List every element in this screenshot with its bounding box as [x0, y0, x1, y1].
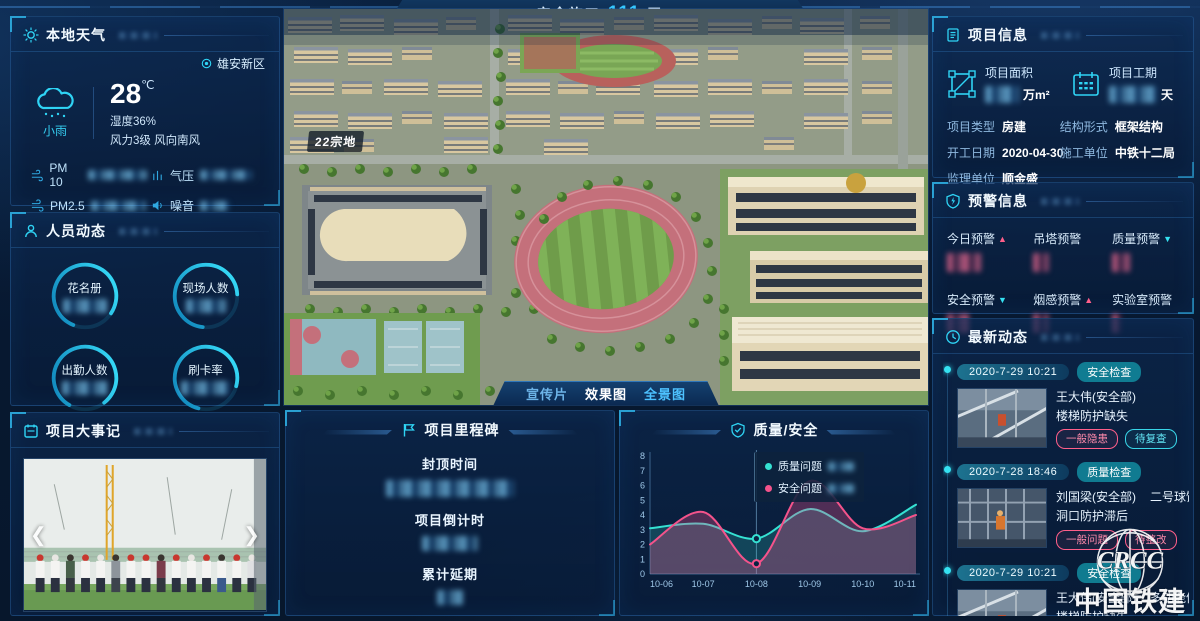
- header-line: [164, 231, 269, 232]
- ring-label: 花名册: [67, 280, 102, 296]
- trend-down-icon: ▼: [1163, 234, 1172, 244]
- stat-unit: 天: [1161, 88, 1173, 102]
- quality-safety-chart[interactable]: 01234567810-0610-0710-0810-0910-1010-11 …: [626, 444, 922, 594]
- redacted-value: [186, 299, 226, 313]
- news-type-badge: 安全检查: [1077, 362, 1141, 382]
- svg-text:1: 1: [640, 554, 645, 564]
- gauge-icon: [151, 169, 164, 182]
- news-photo: [957, 488, 1047, 548]
- svg-text:10-08: 10-08: [745, 579, 768, 589]
- milestone-panel-header: 项目里程碑: [286, 411, 614, 440]
- metric-label: PM 10: [49, 161, 82, 189]
- weather-condition: 小雨: [33, 88, 77, 139]
- calendar-icon: [1071, 69, 1101, 99]
- speaker-icon: [151, 199, 164, 212]
- events-photo-carousel[interactable]: ❮ ❯: [23, 458, 267, 612]
- news-type-badge: 质量检查: [1077, 462, 1141, 482]
- svg-text:10-11: 10-11: [894, 579, 916, 589]
- weather-current: 小雨 28℃ 湿度36% 风力3级 风向南风: [33, 78, 269, 148]
- svg-text:10-09: 10-09: [798, 579, 821, 589]
- milestone-label: 累计延期: [422, 564, 478, 583]
- weather-readings: 28℃ 湿度36% 风力3级 风向南风: [110, 78, 200, 148]
- events-panel-title: 项目大事记: [46, 421, 121, 441]
- wind-label: 风力3级 风向南风: [110, 132, 200, 148]
- project-stats: 项目面积 万m² 项目工期 天: [933, 52, 1193, 108]
- header-decor: [1041, 334, 1079, 341]
- events-panel: 项目大事记: [10, 412, 280, 616]
- project-info-header: 项目信息: [933, 17, 1193, 52]
- milestone-label: 封顶时间: [422, 454, 478, 473]
- news-header: 最新动态: [933, 319, 1193, 354]
- news-photo: [957, 589, 1047, 616]
- warning-label: 实验室预警: [1112, 291, 1172, 308]
- field-value: 房建: [1002, 118, 1026, 135]
- milestone-items: 封顶时间 项目倒计时 累计延期: [286, 440, 614, 605]
- warning-label: 吊塔预警: [1033, 230, 1081, 247]
- personnel-panel: 人员动态 花名册 现场人数 出勤人数 刷卡率: [10, 212, 280, 406]
- redacted-value: [181, 381, 231, 395]
- news-tag: 一般隐患: [1056, 429, 1118, 449]
- redacted-value: [1033, 253, 1049, 272]
- field-label: 施工单位: [1060, 144, 1108, 161]
- redacted-value: [91, 201, 146, 211]
- redacted-value: [1112, 253, 1130, 272]
- svg-text:4: 4: [640, 510, 645, 520]
- header-decor: [1041, 198, 1079, 205]
- timeline-dot: [944, 567, 951, 574]
- warnings-title: 预警信息: [968, 191, 1028, 211]
- redacted-value: [200, 201, 230, 211]
- smart-site-dashboard: 安全施工 111 天 本地天气 雄安新区 小雨 28℃: [0, 0, 1200, 621]
- aerial-render: [284, 9, 928, 405]
- timeline-dot: [944, 466, 951, 473]
- header-decor: [134, 428, 172, 435]
- milestone-panel: 项目里程碑 封顶时间 项目倒计时 累计延期: [285, 410, 615, 616]
- weather-panel-title: 本地天气: [46, 25, 106, 45]
- divider: [93, 87, 94, 139]
- legend-dot: [765, 463, 772, 470]
- group-photo: [24, 459, 266, 610]
- personnel-rings: 花名册 现场人数 出勤人数 刷卡率: [11, 248, 279, 414]
- ring-roster: 花名册: [49, 260, 121, 332]
- svg-text:10-10: 10-10: [851, 579, 874, 589]
- dust-icon: [31, 199, 44, 212]
- redacted-value: [88, 170, 147, 180]
- temperature-unit: ℃: [141, 78, 154, 92]
- humidity-label: 湿度36%: [110, 113, 200, 129]
- chart-tooltip: 质量问题 安全问题: [754, 452, 864, 502]
- legend-label: 安全问题: [778, 480, 822, 496]
- personnel-panel-header: 人员动态: [11, 213, 279, 248]
- project-fields: 项目类型房建 结构形式框架结构 开工日期2020-04-30 施工单位中铁十二局…: [933, 108, 1193, 187]
- crcc-acronym: CRCC: [1097, 548, 1164, 575]
- ring-onsite: 现场人数: [170, 260, 242, 332]
- field-label: 结构形式: [1060, 118, 1108, 135]
- document-icon: [945, 27, 961, 43]
- field-value: 中铁十二局: [1115, 144, 1175, 161]
- legend-label: 质量问题: [778, 458, 822, 474]
- location-pin-icon: [201, 58, 212, 69]
- redacted-value: [63, 299, 107, 313]
- header-line: [164, 35, 269, 36]
- carousel-prev-button[interactable]: ❮: [30, 523, 47, 548]
- redacted-value: [437, 590, 463, 605]
- svg-text:5: 5: [640, 495, 645, 505]
- warning-label: 质量预警: [1112, 230, 1160, 247]
- field-value: 框架结构: [1115, 118, 1163, 135]
- redacted-value: [947, 253, 981, 272]
- news-tag: 待复查: [1125, 429, 1177, 449]
- svg-text:2: 2: [640, 540, 645, 550]
- carousel-next-button[interactable]: ❯: [243, 523, 260, 548]
- svg-text:10-06: 10-06: [650, 579, 673, 589]
- rain-cloud-icon: [33, 88, 77, 120]
- warning-crane: 吊塔预警: [1033, 230, 1106, 277]
- person-icon: [23, 223, 39, 239]
- trend-up-icon: ▲: [1084, 295, 1093, 305]
- ring-swipe-rate: 刷卡率: [170, 342, 242, 414]
- timeline-dot: [944, 366, 951, 373]
- redacted-value: [828, 484, 854, 493]
- header-line: [1086, 337, 1183, 338]
- warnings-header: 预警信息: [933, 183, 1193, 218]
- field-contractor: 施工单位中铁十二局: [1060, 144, 1187, 161]
- project-info-panel: 项目信息 项目面积 万m² 项目工期 天 项目类型房建 结构形式: [932, 16, 1194, 178]
- ring-attendance: 出勤人数: [49, 342, 121, 414]
- location-row: 雄安新区: [11, 55, 265, 72]
- warnings-panel: 预警信息 今日预警▲ 吊塔预警 质量预警▼ 安全预警▼ 烟感预警▲: [932, 182, 1194, 314]
- header-line: [1086, 201, 1183, 202]
- plot-label: 22宗地: [307, 131, 365, 152]
- svg-text:10-07: 10-07: [692, 579, 715, 589]
- warning-quality: 质量预警▼: [1112, 230, 1185, 277]
- trend-down-icon: ▼: [998, 295, 1007, 305]
- legend-quality: 质量问题: [765, 458, 854, 474]
- field-label: 项目类型: [947, 118, 995, 135]
- clock-icon: [945, 329, 961, 345]
- news-issue: 楼梯防护缺失: [1056, 407, 1177, 426]
- stat-area: 项目面积 万m²: [947, 64, 1061, 104]
- project-info-title: 项目信息: [968, 25, 1028, 45]
- milestone-delay: 累计延期: [422, 564, 478, 605]
- milestone-topping-time: 封顶时间: [386, 454, 514, 497]
- weather-panel: 本地天气 雄安新区 小雨 28℃ 湿度36% 风力3级 风向南风: [10, 16, 280, 206]
- sun-icon: [23, 27, 39, 43]
- legend-safety: 安全问题: [765, 480, 854, 496]
- news-entry[interactable]: 2020-7-29 10:21安全检查 王大伟(安全部) 楼梯防护缺失 一般隐患…: [957, 362, 1189, 449]
- redacted-value: [828, 462, 854, 471]
- news-time: 2020-7-29 10:21: [957, 364, 1069, 380]
- svg-text:3: 3: [640, 525, 645, 535]
- personnel-panel-title: 人员动态: [46, 221, 106, 241]
- tab-render-view[interactable]: 效果图: [585, 384, 627, 403]
- alert-badge-icon: [945, 193, 961, 209]
- metric-pm10: PM 10: [31, 161, 147, 189]
- dust-icon: [31, 169, 43, 182]
- field-structure: 结构形式框架结构: [1060, 118, 1187, 135]
- warning-today: 今日预警▲: [947, 230, 1027, 277]
- events-panel-header: 项目大事记: [11, 413, 279, 448]
- metric-label: PM2.5: [50, 199, 85, 213]
- site-3d-view[interactable]: 22宗地 宣传片 效果图 全景图: [283, 8, 929, 406]
- news-place: 二号球馆: [1150, 488, 1189, 507]
- ring-label: 现场人数: [183, 280, 229, 296]
- header-decor: [1041, 32, 1079, 39]
- shield-check-icon: [730, 422, 746, 438]
- legend-dot: [765, 485, 772, 492]
- metric-pressure: 气压: [151, 161, 267, 189]
- news-person: 王大伟(安全部): [1056, 388, 1136, 407]
- svg-text:0: 0: [640, 569, 645, 579]
- field-project-type: 项目类型房建: [947, 118, 1060, 135]
- field-start-date: 开工日期2020-04-30: [947, 144, 1060, 161]
- metric-label: 气压: [170, 167, 194, 184]
- warning-label: 今日预警: [947, 230, 995, 247]
- scene-view-tabs: 宣传片 效果图 全景图: [494, 381, 719, 405]
- ring-label: 出勤人数: [62, 362, 108, 378]
- stat-unit: 万m²: [1023, 88, 1050, 102]
- redacted-value: [422, 536, 478, 551]
- redacted-value: [386, 480, 514, 497]
- ring-label: 刷卡率: [188, 362, 223, 378]
- news-person: 刘国梁(安全部): [1056, 488, 1136, 507]
- svg-text:7: 7: [640, 466, 645, 476]
- quality-safety-header: 质量/安全: [620, 411, 928, 440]
- field-value: 2020-04-30: [1002, 146, 1063, 160]
- crcc-logo: CRCC 中国铁建: [1066, 519, 1194, 619]
- warning-label: 安全预警: [947, 291, 995, 308]
- redacted-value: [200, 170, 252, 180]
- redacted-value: [1109, 86, 1157, 103]
- area-icon: [947, 69, 977, 99]
- header-decor: [119, 228, 157, 235]
- weather-panel-header: 本地天气: [11, 17, 279, 52]
- svg-text:8: 8: [640, 451, 645, 461]
- header-line: [1086, 35, 1183, 36]
- news-time: 2020-7-28 18:46: [957, 464, 1069, 480]
- stat-label: 项目工期: [1109, 64, 1173, 81]
- air-metrics: PM 10 气压 PM2.5 噪音: [31, 161, 267, 214]
- redacted-value: [62, 381, 108, 395]
- stat-label: 项目面积: [985, 64, 1050, 81]
- crcc-name: 中国铁建: [1066, 580, 1194, 619]
- trend-up-icon: ▲: [998, 234, 1007, 244]
- tab-panorama[interactable]: 全景图: [644, 384, 686, 403]
- milestone-label: 项目倒计时: [415, 510, 485, 529]
- news-time: 2020-7-29 10:21: [957, 565, 1069, 581]
- calendar-note-icon: [23, 423, 39, 439]
- tab-promo-video[interactable]: 宣传片: [526, 384, 568, 403]
- flag-icon: [401, 422, 417, 438]
- stat-duration: 项目工期 天: [1071, 64, 1185, 104]
- header-decor: [119, 32, 157, 39]
- milestone-panel-title: 项目里程碑: [425, 420, 500, 440]
- news-title: 最新动态: [968, 327, 1028, 347]
- milestone-countdown: 项目倒计时: [415, 510, 485, 551]
- header-line: [179, 431, 269, 432]
- temperature-value: 28: [110, 78, 141, 109]
- warning-label: 烟感预警: [1033, 291, 1081, 308]
- svg-text:6: 6: [640, 481, 645, 491]
- quality-safety-panel: 质量/安全 01234567810-0610-0710-0810-0910-10…: [619, 410, 929, 616]
- news-photo: [957, 388, 1047, 448]
- redacted-value: [985, 86, 1019, 103]
- condition-label: 小雨: [43, 122, 67, 139]
- quality-safety-title: 质量/安全: [754, 420, 819, 440]
- location-label: 雄安新区: [217, 55, 265, 72]
- field-label: 开工日期: [947, 144, 995, 161]
